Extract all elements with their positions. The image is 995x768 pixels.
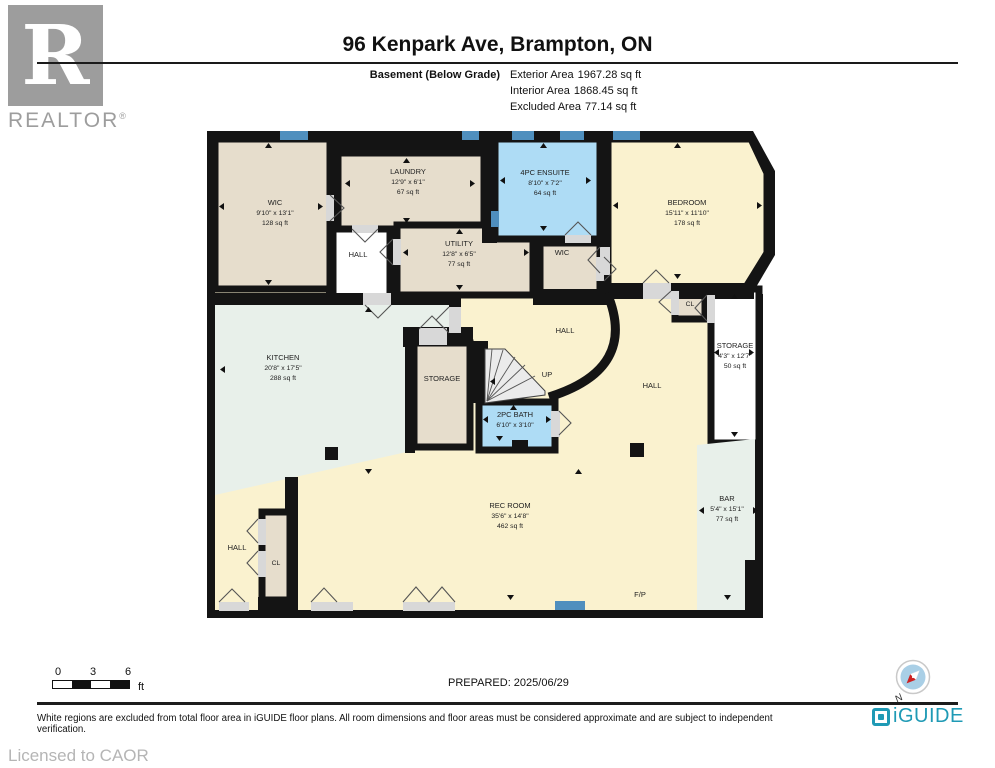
label-rec: REC ROOM [489, 501, 530, 510]
label-hall-top: HALL [349, 250, 368, 259]
label-hall-bottom: HALL [228, 543, 247, 552]
header-rule [37, 62, 958, 64]
licensed-text: Licensed to CAOR [8, 746, 149, 766]
interior-area-row: Interior Area1868.45 sq ft [510, 85, 638, 97]
label-bedroom: BEDROOM [668, 198, 707, 207]
scale-6: 6 [125, 666, 131, 678]
label-fireplace: F/P [634, 590, 646, 599]
exterior-area-row: Exterior Area1967.28 sq ft [510, 69, 641, 81]
scale-0: 0 [55, 666, 61, 678]
label-cl-bottom: CL [272, 560, 281, 567]
label-hall-mid: HALL [556, 326, 575, 335]
svg-text:178 sq ft: 178 sq ft [674, 220, 700, 227]
svg-text:9'10" x 13'1": 9'10" x 13'1" [256, 210, 294, 217]
footer-rule [37, 702, 958, 705]
room-cl-bottom-area [262, 512, 290, 600]
svg-text:8'10" x 7'2": 8'10" x 7'2" [528, 180, 562, 187]
svg-text:12'9" x 6'1": 12'9" x 6'1" [391, 179, 425, 186]
svg-text:288 sq ft: 288 sq ft [270, 375, 296, 382]
excluded-area-row: Excluded Area77.14 sq ft [510, 101, 636, 113]
svg-text:462 sq ft: 462 sq ft [497, 523, 523, 530]
scale-bar: 0 3 6 ft [52, 666, 142, 689]
label-kitchen: KITCHEN [267, 353, 300, 362]
svg-text:4'3" x 12'7": 4'3" x 12'7" [718, 353, 752, 360]
svg-text:15'11" x 11'10": 15'11" x 11'10" [665, 210, 709, 217]
iguide-icon [872, 708, 890, 726]
label-storage-right: STORAGE [717, 341, 754, 350]
iguide-logo: iGUIDE [872, 705, 964, 728]
page-title: 96 Kenpark Ave, Brampton, ON [0, 33, 995, 57]
svg-text:35'6" x 14'8": 35'6" x 14'8" [491, 513, 529, 520]
label-wic-small: WIC [555, 248, 570, 257]
label-hall-center: HALL [643, 381, 662, 390]
prepared-date: PREPARED: 2025/06/29 [448, 677, 569, 689]
svg-text:64 sq ft: 64 sq ft [534, 190, 556, 197]
registered-mark: ® [119, 111, 128, 121]
iguide-wordmark: iGUIDE [893, 705, 964, 728]
label-utility: UTILITY [445, 239, 473, 248]
label-up: UP [542, 370, 552, 379]
realtor-wordmark: REALTOR® [8, 109, 128, 133]
label-bath: 2PC BATH [497, 410, 533, 419]
scale-unit: ft [138, 681, 144, 693]
realtor-logo: R [8, 5, 103, 106]
label-storage-mid: STORAGE [424, 374, 461, 383]
floor-plan: WIC 9'10" x 13'1" 128 sq ft LAUNDRY 12'9… [207, 131, 775, 618]
svg-text:20'8" x 17'5": 20'8" x 17'5" [264, 365, 302, 372]
svg-text:77 sq ft: 77 sq ft [716, 516, 738, 523]
realtor-logo-r: R [21, 15, 89, 97]
room-storage-mid-area [414, 343, 470, 447]
svg-text:77 sq ft: 77 sq ft [448, 261, 470, 268]
svg-text:12'8" x 6'5": 12'8" x 6'5" [442, 251, 476, 258]
label-ensuite: 4PC ENSUITE [520, 168, 569, 177]
svg-text:6'10" x 3'10": 6'10" x 3'10" [496, 422, 534, 429]
label-cl-right: CL [686, 301, 695, 308]
scale-3: 3 [90, 666, 96, 678]
label-laundry: LAUNDRY [390, 167, 426, 176]
room-ensuite-area [495, 139, 600, 239]
scale-bar-segments [52, 680, 130, 689]
svg-text:50 sq ft: 50 sq ft [724, 363, 746, 370]
room-wic-small-area [540, 243, 600, 293]
disclaimer-text: White regions are excluded from total fl… [37, 713, 777, 735]
compass-icon: N [890, 658, 936, 706]
svg-text:5'4" x 15'1": 5'4" x 15'1" [710, 506, 744, 513]
svg-text:128 sq ft: 128 sq ft [262, 220, 288, 227]
svg-text:67 sq ft: 67 sq ft [397, 189, 419, 196]
label-wic: WIC [268, 198, 283, 207]
label-bar: BAR [719, 494, 735, 503]
